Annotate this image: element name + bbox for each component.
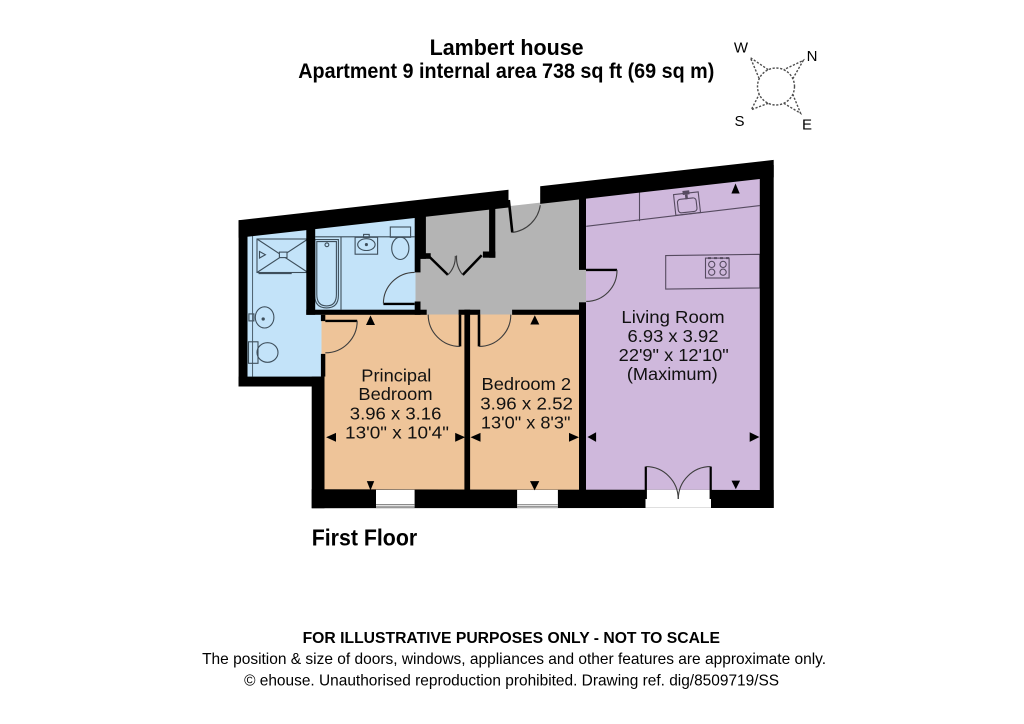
svg-text:Lambert house: Lambert house (430, 35, 584, 60)
svg-text:13'0" x 10'4": 13'0" x 10'4" (345, 423, 449, 443)
svg-text:Bedroom 2: Bedroom 2 (482, 374, 572, 394)
svg-text:FOR ILLUSTRATIVE PURPOSES ONLY: FOR ILLUSTRATIVE PURPOSES ONLY - NOT TO … (303, 630, 721, 647)
svg-text:© ehouse. Unauthorised reprodu: © ehouse. Unauthorised reproduction proh… (244, 672, 779, 689)
svg-text:(Maximum): (Maximum) (627, 364, 718, 384)
svg-text:E: E (802, 117, 812, 134)
svg-text:S: S (734, 113, 744, 130)
svg-text:22'9" x 12'10": 22'9" x 12'10" (619, 345, 729, 365)
svg-text:First Floor: First Floor (312, 524, 418, 550)
svg-text:13'0" x 8'3": 13'0" x 8'3" (481, 412, 571, 432)
svg-text:N: N (807, 48, 818, 65)
svg-text:6.93 x 3.92: 6.93 x 3.92 (628, 326, 719, 346)
svg-text:Principal: Principal (361, 365, 431, 385)
svg-text:3.96 x 2.52: 3.96 x 2.52 (480, 393, 573, 413)
svg-text:W: W (734, 40, 749, 57)
svg-text:Bedroom: Bedroom (358, 384, 432, 404)
svg-text:The position & size of doors,: The position & size of doors, windows, a… (202, 651, 826, 668)
svg-text:Apartment 9 internal area 738: Apartment 9 internal area 738 sq ft (69 … (298, 59, 714, 83)
svg-text:Living Room: Living Room (621, 307, 724, 327)
svg-text:3.96 x 3.16: 3.96 x 3.16 (350, 403, 442, 423)
